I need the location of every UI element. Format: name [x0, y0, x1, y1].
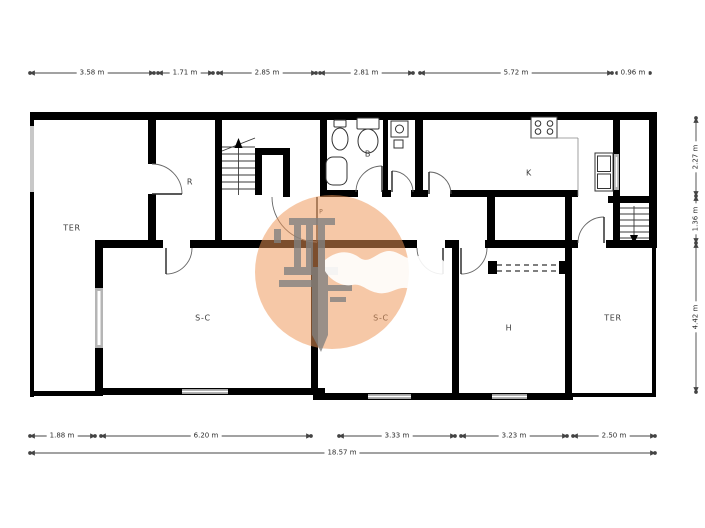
dimension-label-bottom-4: 3.23 m [499, 432, 530, 441]
room-label-r: R [187, 178, 193, 187]
washbasin-icon [326, 157, 347, 185]
dimension-label-top-2: 1.71 m [170, 69, 201, 78]
doors [152, 164, 604, 274]
watermark-circle-icon [255, 195, 409, 349]
bidet-icon [332, 128, 348, 150]
dimension-label-overall: 18.57 m [324, 449, 359, 458]
closet-dashed-lines [497, 265, 559, 271]
dimension-label-right-1: 2.27 m [692, 142, 701, 173]
dimension-label-bottom-2: 6.20 m [191, 432, 222, 441]
room-label-ter-left: TER [63, 224, 81, 233]
staircase-right [620, 206, 649, 244]
walls [30, 112, 657, 400]
burner-icon [535, 129, 541, 135]
room-label-h: H [506, 324, 513, 333]
room-label-sc-left: S-C [195, 314, 211, 323]
dimension-label-top-6: 0.96 m [618, 69, 649, 78]
dimension-label-right-2: 1.36 m [692, 204, 701, 235]
bidet-icon [334, 120, 346, 127]
stove-icon [531, 117, 557, 138]
windows [30, 126, 619, 399]
dimension-label-top-5: 5.72 m [501, 69, 532, 78]
room-label-sc-mid: S-C [373, 314, 389, 323]
dimension-label-right-3: 4.42 m [692, 302, 701, 333]
dimension-label-bottom-1: 1.88 m [47, 432, 78, 441]
dimension-label-bottom-5: 2.50 m [599, 432, 630, 441]
room-label-ter-right: TER [604, 314, 622, 323]
laundry-sink-icon [396, 125, 404, 133]
staircase-main [222, 138, 255, 195]
stair-down-arrow-icon [630, 235, 638, 244]
room-label-b: B [365, 150, 371, 159]
kitchen-sink-icon [598, 174, 611, 189]
stair-up-arrow-icon [235, 138, 243, 148]
room-label-p: P [319, 209, 323, 216]
dimension-label-top-1: 3.58 m [77, 69, 108, 78]
dimension-label-top-4: 2.81 m [351, 69, 382, 78]
dimension-label-top-3: 2.85 m [252, 69, 283, 78]
watermark-aqueduct-icon [274, 218, 352, 352]
laundry-sink-icon [391, 121, 408, 137]
burner-icon [535, 121, 541, 127]
kitchen-sink-icon [595, 153, 613, 191]
room-label-k: K [526, 169, 532, 178]
toilet-icon [357, 118, 379, 129]
burner-icon [547, 129, 553, 135]
floor-plan-canvas: TER R B K P S-C S-C H TER [0, 0, 705, 528]
burner-icon [547, 121, 553, 127]
kitchen-counter [531, 138, 578, 196]
kitchen-sink-icon [598, 156, 611, 172]
laundry-tap-icon [394, 140, 403, 148]
dimension-label-bottom-3: 3.33 m [382, 432, 413, 441]
watermark-river-icon [325, 251, 448, 293]
